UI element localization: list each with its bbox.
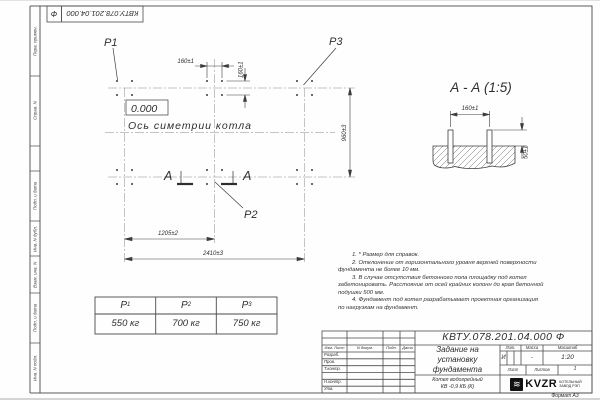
section-view (433, 111, 527, 169)
load-label-p3: P3 (329, 36, 343, 48)
kvzr-logo-icon: ≋ (510, 378, 523, 391)
dim-1205 (125, 237, 215, 240)
concrete-block (433, 146, 515, 169)
section-dim-160 (451, 111, 490, 127)
load-value-p2: 700 кг (156, 314, 217, 334)
kvzr-logo-subtext: КОТЕЛЬНЫЙ ЗАВОД РЭП (559, 380, 582, 388)
note-line: 2. Отклонение от горизонтального уровня … (338, 260, 600, 266)
margin-label-inv-dubl: Инв. N дубл. (30, 221, 40, 256)
header-data: Дата (400, 345, 415, 352)
section-letter-right: А (242, 169, 251, 183)
section-cut-marks (177, 171, 237, 184)
dim-160h-text: 160±1 (177, 59, 194, 65)
section-dim-50-text: 50±1 (524, 146, 530, 159)
load-value-p1: 550 кг (95, 314, 156, 334)
load-table-header: P3 (216, 297, 277, 314)
row-prov: Пров. (324, 359, 347, 366)
header-izm-list: Изм. Лист (322, 345, 347, 352)
margin-label-sprav-n: Справ. N (30, 76, 40, 146)
dim-960 (348, 88, 351, 177)
dim-2410 (125, 257, 305, 260)
stamp-letter: Ф (47, 6, 62, 22)
drawing-sheet: P1 P3 P2 0.000 Ось симетрии котла 160±1 … (0, 0, 600, 400)
margin-label-podp-data-1: Подп. и дата (30, 171, 40, 221)
p1-symbol: P (120, 300, 127, 311)
load-label-p1: P1 (104, 37, 117, 49)
row-blank (324, 373, 347, 380)
note-line: подушки 500 мм. (338, 290, 592, 296)
massa-value: - (521, 351, 543, 365)
section-dim-160-text: 160±1 (462, 106, 479, 112)
dim-160v-text: 160±1 (239, 61, 245, 78)
section-letter-left: А (163, 169, 172, 183)
level-mark-value: 0.000 (131, 103, 157, 115)
note-line: 4. Фундамент под котел разрабатывает про… (338, 297, 600, 303)
dim-2410-text: 2410±3 (202, 251, 224, 257)
load-label-p2: P2 (244, 209, 257, 221)
listov-label: Листов (526, 365, 558, 375)
row-razrab: Разраб. (324, 352, 347, 359)
p3-subscript: 3 (248, 302, 251, 309)
dim-960-text: 960±3 (342, 124, 348, 141)
margin-label-podp-data-2: Подп. и дата (30, 293, 40, 343)
row-utv: Утв. (324, 386, 347, 393)
p2-symbol: P (181, 300, 188, 311)
load-table-header: P1 (95, 297, 156, 314)
plan-centerlines (105, 59, 355, 263)
header-podp: Подп. (383, 345, 400, 352)
note-line: забетонировать. Расстояние от осей крайн… (338, 282, 592, 288)
p2-subscript: 2 (188, 302, 191, 309)
drawing-title-line3: фундамента (415, 366, 500, 375)
list-label: Лист (500, 365, 526, 375)
symmetry-axis-label: Ось симетрии котла (128, 120, 252, 132)
p3-symbol: P (242, 300, 249, 311)
anchor-bolt-right (487, 130, 492, 163)
masshtab-value: 1:20 (543, 351, 592, 365)
row-t-kontr: Т.контр. (324, 366, 347, 373)
kvzr-logo-text: KVZR (525, 378, 557, 390)
drawing-title-line2: установку (415, 356, 500, 365)
margin-label-perv-primen: Перв. примен. (30, 6, 40, 76)
logo-sub-line2: ЗАВОД РЭП (559, 384, 580, 388)
note-line: фундамента не более 10 мм. (338, 267, 592, 273)
header-n-dokum: N докум. (347, 345, 383, 352)
anchor-bolt-left (448, 130, 453, 163)
note-line: 1. * Размер для справок. (338, 252, 600, 258)
section-view-title: А - А (1:5) (449, 80, 512, 95)
rotated-doc-number-stamp: КВТУ.078.201.04.000 Ф (47, 6, 143, 22)
margin-label-vzam-inv: Взам. инв. N (30, 256, 40, 293)
load-value-p3: 750 кг (216, 314, 277, 334)
title-block-doc-number: КВТУ.078.201.04.000 Ф (415, 331, 592, 345)
lit-value: И (500, 351, 507, 365)
p1-subscript: 1 (127, 302, 130, 309)
load-table-header: P2 (156, 297, 217, 314)
product-name-line2: КВ -0,9 КБ (К) (415, 384, 500, 392)
note-line: по нагрузкам на фундамент. (338, 305, 592, 311)
company-logo: ≋ KVZR КОТЕЛЬНЫЙ ЗАВОД РЭП (500, 375, 592, 393)
margin-label-inv-podl: Инв. N подл. (30, 343, 40, 393)
note-line: 3. В случае отсутствия бетонного пола пл… (338, 275, 600, 281)
drawing-title-line1: Задание на (415, 346, 500, 355)
dim-1205-text: 1205±2 (158, 231, 179, 237)
listov-value: 1 (558, 365, 592, 375)
row-n-kontr: Н.контр. (324, 379, 347, 386)
stamp-doc-number: КВТУ.078.201.04.000 (62, 6, 143, 22)
